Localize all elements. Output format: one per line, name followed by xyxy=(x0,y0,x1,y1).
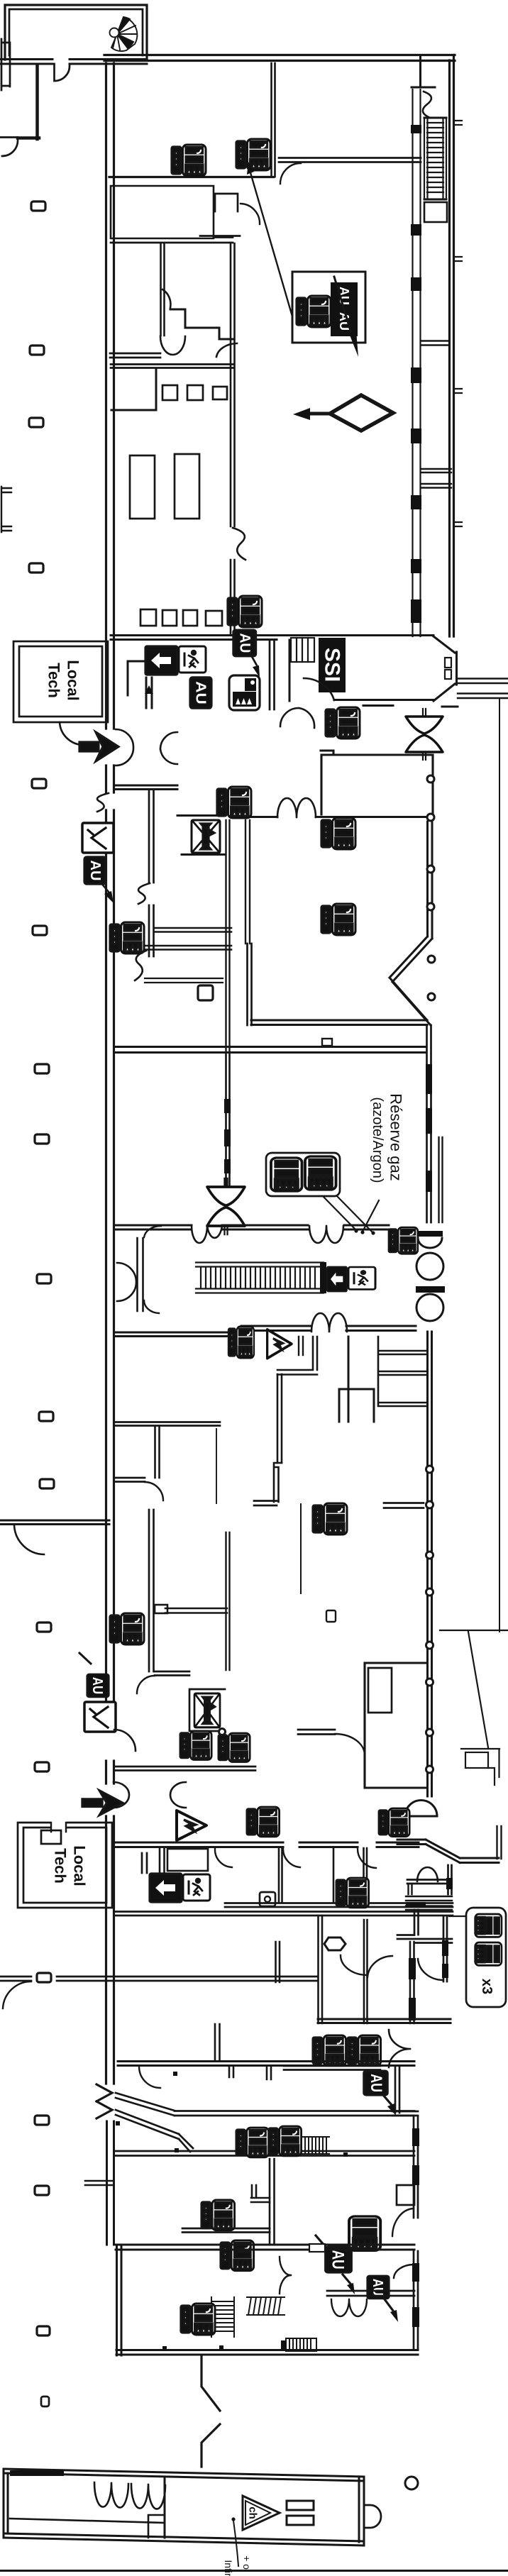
svg-text:+ o: + o xyxy=(241,2555,253,2570)
svg-text:(azote/Argon): (azote/Argon) xyxy=(370,1097,385,1183)
svg-text:Local: Local xyxy=(65,660,82,700)
svg-text:Tech: Tech xyxy=(45,663,63,698)
svg-text:Tech: Tech xyxy=(52,1848,70,1884)
svg-text:ch: ch xyxy=(247,2506,259,2519)
svg-text:SSI: SSI xyxy=(321,648,344,682)
svg-text:Infir: Infir xyxy=(223,2560,234,2576)
svg-text:Local: Local xyxy=(71,1845,89,1886)
svg-text:Réserve gaz: Réserve gaz xyxy=(387,1093,405,1181)
svg-text:x3: x3 xyxy=(479,1979,495,1994)
